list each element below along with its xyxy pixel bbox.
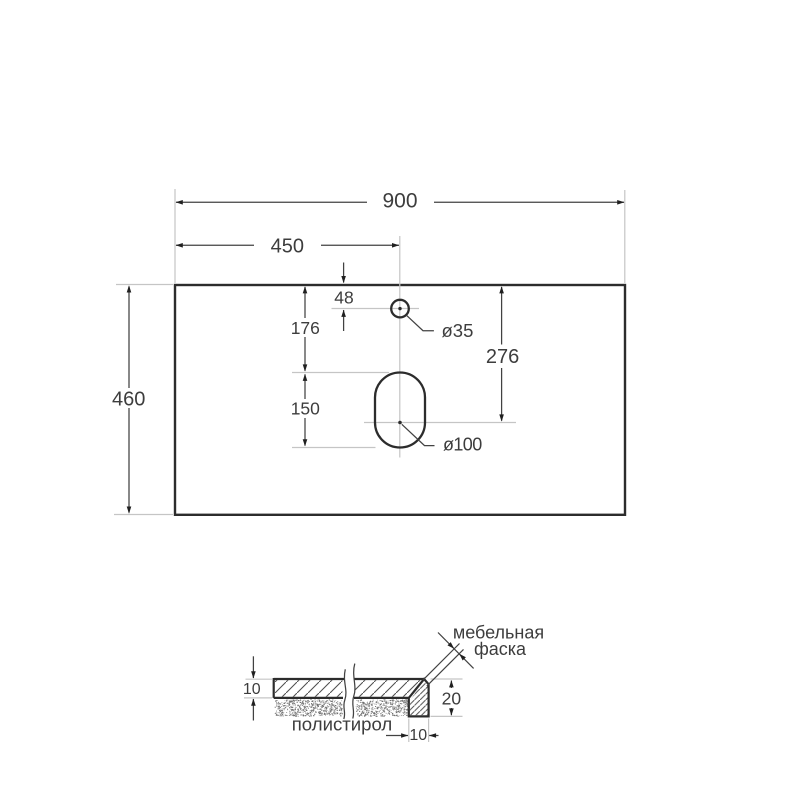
svg-text:ø35: ø35 xyxy=(442,320,474,341)
svg-text:460: 460 xyxy=(112,388,145,410)
svg-text:176: 176 xyxy=(291,318,320,338)
svg-text:ø100: ø100 xyxy=(443,435,482,455)
svg-text:48: 48 xyxy=(334,288,353,308)
svg-text:900: 900 xyxy=(382,189,417,212)
svg-text:10: 10 xyxy=(409,727,427,744)
svg-text:276: 276 xyxy=(486,346,519,368)
svg-text:150: 150 xyxy=(291,399,320,419)
svg-text:фаска: фаска xyxy=(474,639,527,659)
svg-text:полистирол: полистирол xyxy=(292,713,393,734)
svg-text:450: 450 xyxy=(271,235,304,257)
svg-text:20: 20 xyxy=(442,688,462,708)
svg-text:10: 10 xyxy=(243,681,261,698)
